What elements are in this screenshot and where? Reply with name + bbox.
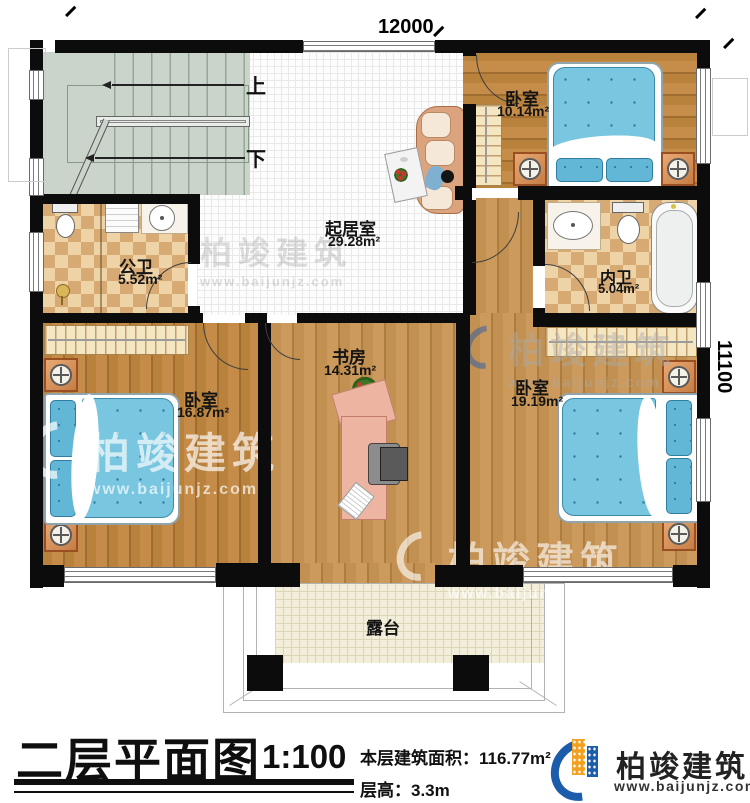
stair-up-label: 上 [246, 70, 266, 99]
wall [533, 200, 545, 266]
floor-area-label: 本层建筑面积： [360, 749, 479, 768]
stair-down-label: 下 [246, 143, 266, 172]
brand-logo-icon [552, 733, 610, 797]
lamp-icon [50, 364, 72, 386]
nightstand-left-top [44, 358, 78, 392]
dim-tick [723, 38, 734, 49]
window-right-2 [696, 282, 711, 348]
stair-down-arrow [85, 154, 94, 162]
person-head [441, 170, 454, 183]
wall [463, 52, 476, 56]
room-area-inner-bath: 5.04m² [598, 281, 639, 296]
stair-up-arrow [102, 81, 111, 89]
window-right-3 [696, 418, 711, 502]
axis-line-topleft [8, 48, 46, 182]
floor-height-label: 层高： [360, 781, 411, 800]
wall [30, 313, 200, 323]
shower-head [56, 284, 70, 298]
title-underline-thick [14, 779, 354, 785]
wall [435, 565, 523, 587]
nightstand-top-right [661, 152, 695, 186]
floorplan-page: 上 下 [0, 0, 750, 803]
sofa-cushion-1 [421, 112, 451, 138]
floor-height-text: 层高：3.3m [360, 776, 450, 801]
bed-right-pillow-1 [666, 400, 692, 456]
table-plate [400, 157, 408, 162]
wall [435, 40, 710, 53]
room-label-terrace: 露台 [366, 614, 400, 639]
wall [216, 563, 300, 587]
toilet-tank [52, 203, 78, 213]
lamp-icon [519, 158, 541, 180]
wall [245, 313, 267, 323]
room-area-study: 14.31m² [324, 362, 376, 378]
room-area-bedroom-top: 10.14m² [497, 103, 549, 119]
window-left-3 [29, 232, 44, 292]
floor-area-value: 116.77m² [479, 749, 551, 768]
lamp-icon [667, 158, 689, 180]
window-right-1 [696, 68, 711, 164]
wall [456, 313, 470, 568]
wall [188, 313, 203, 323]
sheet-scale: 1:100 [262, 738, 346, 776]
window-top [303, 41, 435, 52]
dim-tick [695, 8, 706, 19]
bathtub-inner [656, 210, 693, 307]
computer-monitor [380, 447, 408, 481]
stair-up-line [112, 84, 244, 86]
bed-top-pillow-1 [556, 158, 603, 182]
dimension-top: 12000 [378, 16, 434, 39]
bed-right-pillow-2 [666, 458, 692, 514]
shower-partition [100, 203, 102, 313]
wall [673, 565, 710, 587]
sofa-cushion-2 [425, 140, 455, 166]
wardrobe-right-bedroom [545, 327, 697, 357]
room-area-public-bath: 5.52m² [118, 271, 162, 287]
inner-toilet-tank [612, 202, 644, 213]
floor-height-value: 3.3m [411, 781, 450, 800]
bathtub-faucet [671, 204, 676, 209]
wall [258, 323, 271, 568]
lamp-icon [668, 523, 690, 545]
dim-tick [433, 26, 444, 37]
wall [30, 194, 198, 204]
wall [30, 565, 64, 587]
lamp-icon [668, 366, 690, 388]
terrace-doorway-floor [300, 563, 435, 585]
wall [518, 186, 710, 200]
table-flowers [394, 168, 408, 182]
shower-stem [61, 296, 63, 305]
room-area-bedroom-left: 16.87m² [177, 404, 229, 420]
wall [533, 313, 710, 327]
wall [455, 186, 472, 200]
dimension-right: 11100 [712, 340, 735, 393]
window-bottom-left [64, 567, 216, 583]
wardrobe-left-bedroom [44, 325, 189, 355]
title-underline-thin [14, 791, 354, 793]
wall [297, 313, 470, 323]
toilet-bowl [56, 214, 75, 238]
room-area-bedroom-right: 19.19m² [511, 393, 563, 409]
sink-drain-dot [160, 216, 164, 220]
wall [463, 104, 476, 188]
wall [188, 194, 200, 264]
inner-toilet-bowl [617, 215, 640, 244]
nightstand-top-left [513, 152, 547, 186]
dim-tick [65, 6, 76, 17]
nightstand-right-top [662, 360, 696, 394]
stair-handrail-inner [100, 120, 246, 123]
lamp-icon [50, 524, 72, 546]
terrace-column-right [453, 655, 489, 691]
logo-building-blue [587, 746, 598, 777]
brand-website: www.baijunjz.com [614, 778, 750, 794]
inner-sink-dot [571, 223, 575, 227]
window-bottom-right [523, 567, 673, 583]
stair-handrail [96, 116, 250, 127]
axis-line-topright [712, 78, 748, 136]
floor-area-text: 本层建筑面积：116.77m² [360, 744, 551, 769]
terrace-column-left [247, 655, 283, 691]
stair-down-line [95, 157, 245, 159]
room-area-living: 29.28m² [328, 233, 380, 249]
bed-top-pillow-2 [606, 158, 653, 182]
washing-machine [105, 202, 139, 233]
logo-building-orange [572, 739, 585, 775]
wall [55, 40, 303, 53]
